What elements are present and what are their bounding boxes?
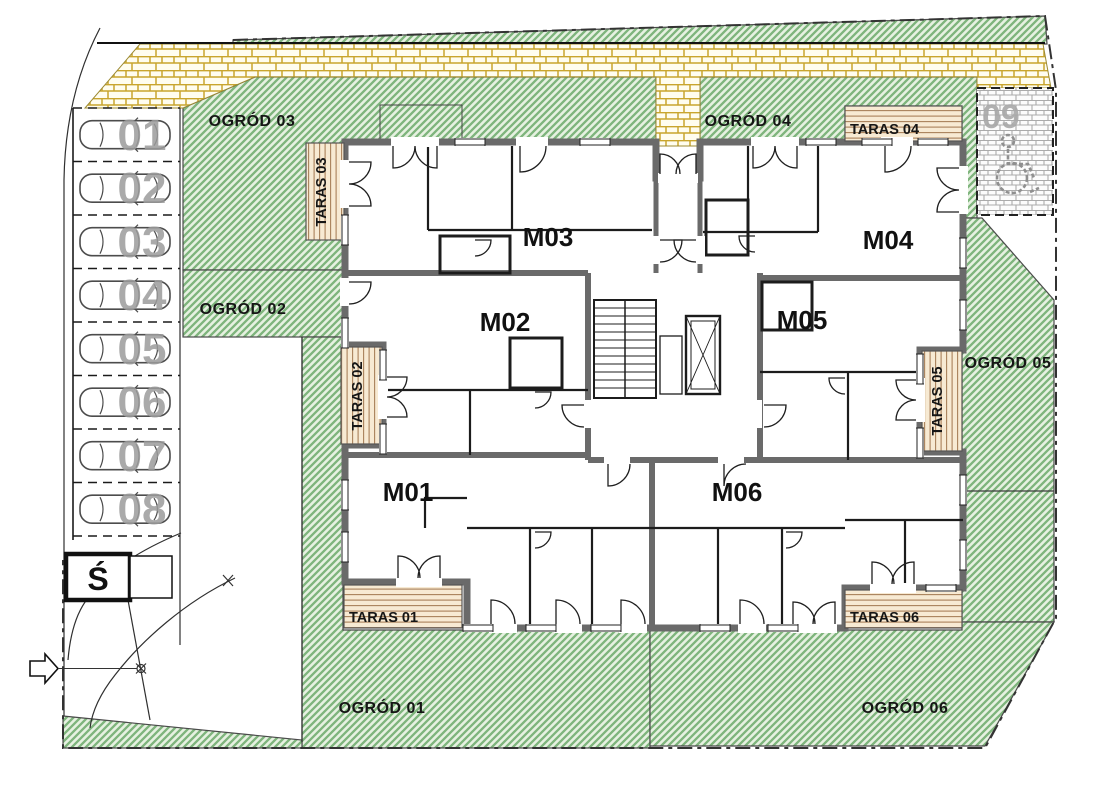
terrace-label-taras-02: TARAS 02 [350,361,366,430]
parking-area: 01 02 03 04 05 06 07 08 Ś [66,108,180,600]
terrace-label-taras-06: TARAS 06 [850,610,919,626]
parking-space-number-07: 07 [118,432,167,481]
parking-space-number-04: 04 [118,271,167,320]
garden-area-roadside-sliver [63,716,302,748]
site-plan-svg: 09 [0,0,1095,810]
parking-space-number-03: 03 [118,218,167,267]
waste-shed-label: Ś [87,561,108,597]
terrace-label-taras-04: TARAS 04 [850,122,919,138]
site-plan-page: 09 [0,0,1095,810]
terrace-label-taras-01: TARAS 01 [349,610,418,626]
parking-space-number-05: 05 [118,325,167,374]
accessible-parking-space: 09 [977,88,1053,215]
garden-label-ogrod-04: OGRÓD 04 [705,111,792,130]
garden-label-ogrod-01: OGRÓD 01 [339,698,426,717]
apartment-label-m05[interactable]: M05 [777,305,828,335]
site-entrance-arrow-icon [30,654,137,683]
terrace-label-taras-05: TARAS 05 [930,366,946,435]
parking-space-number-08: 08 [118,485,167,534]
parking-space-number-01: 01 [118,111,167,160]
garden-label-ogrod-03: OGRÓD 03 [209,111,296,130]
apartment-label-m02[interactable]: M02 [480,307,531,337]
apartment-label-m03[interactable]: M03 [523,222,574,252]
garden-area-ogrod-05 [962,218,1054,622]
apartment-label-m04[interactable]: M04 [863,225,914,255]
terrace-label-taras-03: TARAS 03 [314,157,330,226]
apartment-label-m01[interactable]: M01 [383,477,434,507]
building-floorplan [306,106,968,633]
parking-space-number-06: 06 [118,378,167,427]
garden-label-ogrod-05: OGRÓD 05 [965,353,1052,372]
garden-label-ogrod-02: OGRÓD 02 [200,299,287,318]
garden-area-ogrod-06 [650,622,1054,746]
garden-area-top-strip [233,16,1047,44]
accessible-space-number: 09 [982,98,1020,136]
parking-space-number-02: 02 [118,164,167,213]
waste-shed: Ś [66,554,172,600]
garden-label-ogrod-06: OGRÓD 06 [862,698,949,717]
apartment-label-m06[interactable]: M06 [712,477,763,507]
